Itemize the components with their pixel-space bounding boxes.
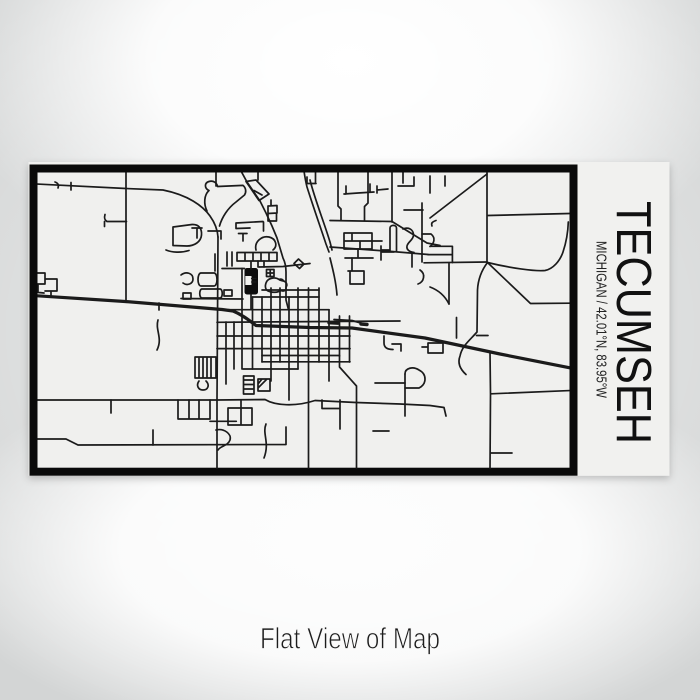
svg-text:Flat View of Map: Flat View of Map <box>260 623 440 656</box>
svg-text:TECUMSEH: TECUMSEH <box>606 201 661 444</box>
svg-text:MICHIGAN / 42.01°N, 83.95°W: MICHIGAN / 42.01°N, 83.95°W <box>593 241 609 398</box>
